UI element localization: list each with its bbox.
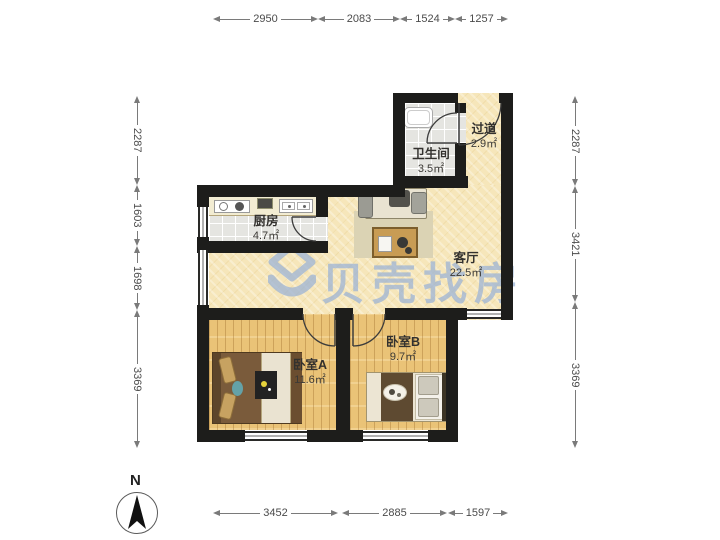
dimension-right: 2287 [568,96,582,186]
hallway-label: 过道 2.9㎡ [471,121,497,152]
room-name: 卧室A [293,357,327,373]
dimension-value: 1597 [463,506,493,520]
dimension-value: 2287 [568,126,582,156]
room-name: 卫生间 [412,146,450,162]
room-area: 4.7㎡ [253,229,279,243]
dimension-right: 3421 [568,186,582,302]
dimension-top: 1257 [455,12,508,26]
room-name: 卧室B [386,334,420,350]
dimension-top: 2083 [318,12,400,26]
dimension-right: 3369 [568,302,582,448]
compass-north-label: N [130,472,141,489]
dimension-bottom: 2885 [342,506,447,520]
room-area: 11.6㎡ [293,373,327,387]
dimension-left: 1698 [130,246,144,310]
dimension-left: 2287 [130,96,144,185]
dimension-value: 3421 [568,229,582,259]
dimension-value: 3369 [568,360,582,390]
dimension-value: 3452 [260,506,290,520]
dimension-top: 2950 [213,12,318,26]
room-name: 过道 [471,121,497,137]
bathroom-label: 卫生间 3.5㎡ [412,146,450,177]
room-area: 2.9㎡ [471,137,497,151]
dimension-value: 2083 [344,12,374,26]
floor-plan-canvas: 贝壳找房 卫生间 3. [0,0,720,540]
room-name: 厨房 [253,213,279,229]
bedroom-b-label: 卧室B 9.7㎡ [386,334,420,365]
room-area: 9.7㎡ [386,350,420,364]
bedroom-a-label: 卧室A 11.6㎡ [293,357,327,388]
room-area: 3.5㎡ [412,162,450,176]
dimension-value: 1257 [466,12,496,26]
room-area: 22.5㎡ [450,266,482,280]
kitchen-label: 厨房 4.7㎡ [253,213,279,244]
dimension-value: 3369 [130,364,144,394]
dimension-value: 1603 [130,200,144,230]
door-swings [0,0,720,540]
dimension-value: 2950 [250,12,280,26]
dimension-value: 1698 [130,263,144,293]
dimension-bottom: 1597 [448,506,508,520]
compass-needle-icon [116,492,158,534]
dimension-left: 1603 [130,185,144,246]
dimension-top: 1524 [400,12,455,26]
room-name: 客厅 [450,250,482,266]
living-room-label: 客厅 22.5㎡ [450,250,482,281]
dimension-value: 2287 [130,125,144,155]
dimension-bottom: 3452 [213,506,338,520]
dimension-value: 2885 [379,506,409,520]
dimension-value: 1524 [412,12,442,26]
dimension-left: 3369 [130,310,144,448]
